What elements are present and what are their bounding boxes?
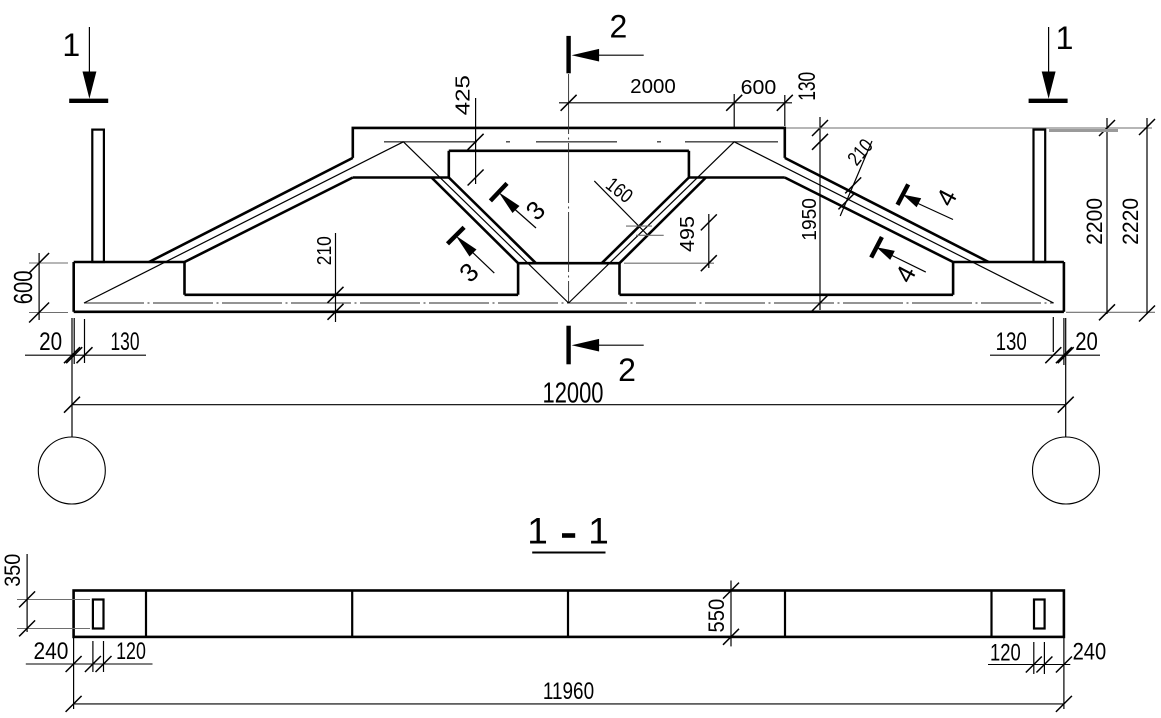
svg-text:130: 130 (794, 72, 821, 101)
svg-text:20: 20 (39, 328, 62, 356)
svg-text:550: 550 (704, 599, 729, 633)
svg-text:1: 1 (527, 511, 548, 552)
svg-text:1: 1 (1056, 20, 1074, 56)
svg-text:11960: 11960 (543, 678, 594, 705)
svg-text:1: 1 (588, 511, 609, 552)
svg-text:2: 2 (610, 9, 628, 45)
svg-text:600: 600 (8, 271, 38, 305)
svg-text:2000: 2000 (630, 76, 676, 98)
svg-text:2200: 2200 (1082, 198, 1107, 245)
svg-text:120: 120 (990, 640, 1021, 667)
svg-text:1950: 1950 (799, 198, 821, 241)
svg-text:2220: 2220 (1118, 198, 1143, 245)
svg-text:350: 350 (0, 554, 25, 587)
svg-text:20: 20 (1075, 328, 1098, 356)
svg-text:240: 240 (34, 638, 69, 665)
svg-text:495: 495 (677, 216, 699, 252)
svg-text:600: 600 (741, 77, 777, 99)
svg-text:210: 210 (314, 236, 336, 265)
svg-text:2: 2 (618, 352, 636, 388)
svg-text:12000: 12000 (543, 378, 604, 410)
svg-text:120: 120 (116, 638, 146, 665)
svg-text:425: 425 (453, 75, 475, 115)
svg-text:1: 1 (62, 27, 80, 63)
svg-text:130: 130 (111, 328, 140, 356)
svg-text:240: 240 (1073, 639, 1107, 666)
svg-text:130: 130 (996, 328, 1027, 356)
